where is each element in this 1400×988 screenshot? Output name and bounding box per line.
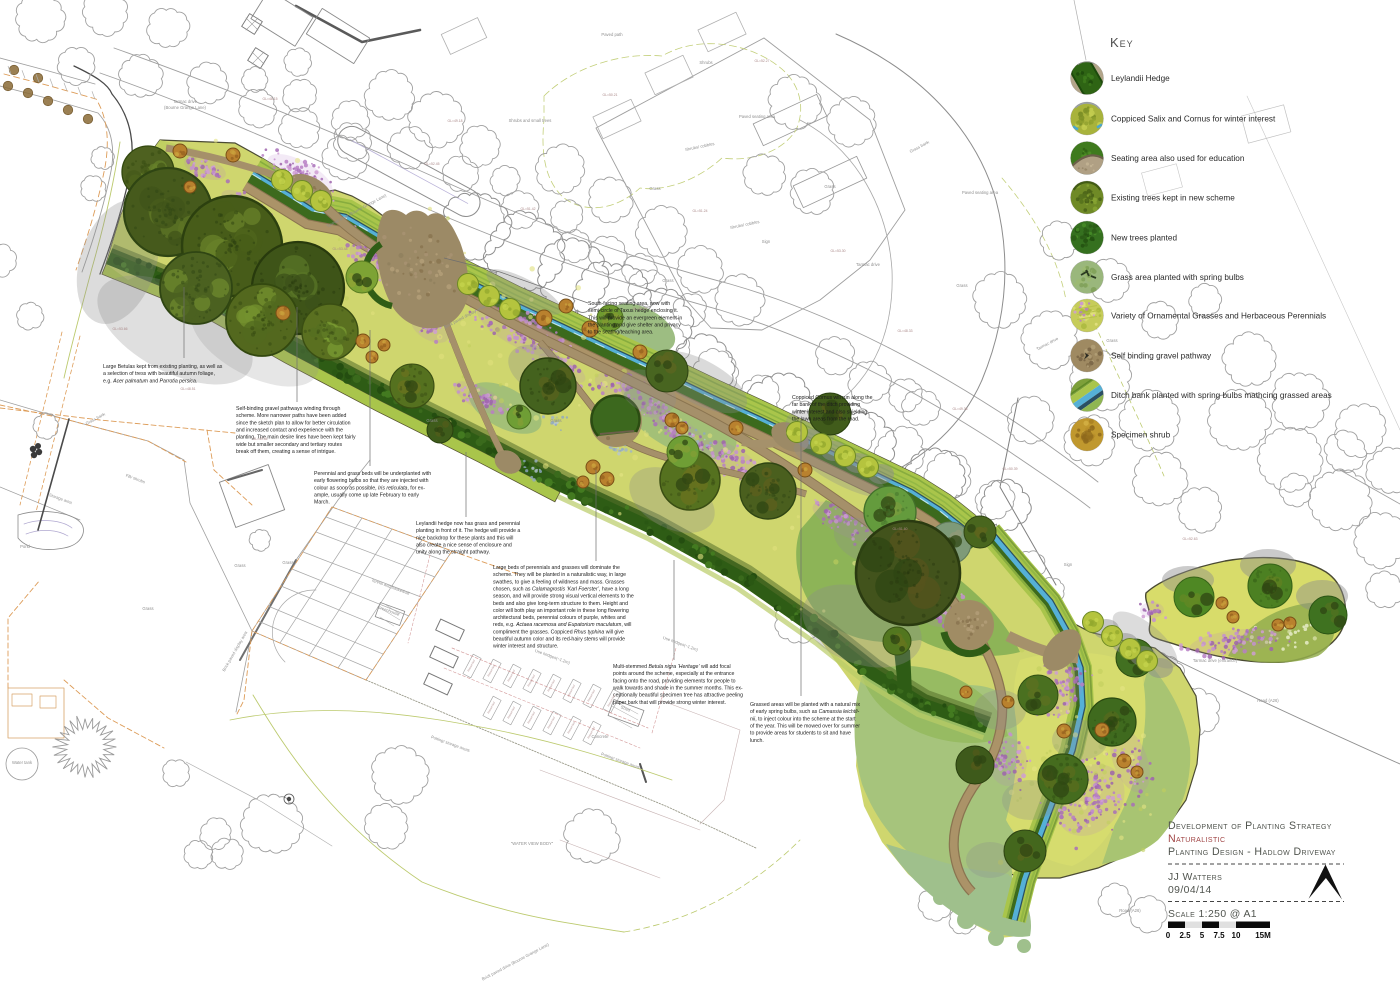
- svg-text:Paved seating area: Paved seating area: [962, 190, 999, 195]
- svg-text:Grass: Grass: [824, 184, 835, 189]
- svg-text:Leylandii Hedge: Leylandii Hedge: [1111, 74, 1170, 83]
- svg-text:GL=50.39: GL=50.39: [1003, 467, 1018, 471]
- svg-text:5: 5: [1200, 931, 1205, 940]
- svg-text:GL=51.60: GL=51.60: [893, 527, 908, 531]
- svg-text:Paved path: Paved path: [601, 32, 623, 37]
- svg-text:Specimen shrub: Specimen shrub: [1111, 431, 1171, 440]
- svg-text:0: 0: [1166, 931, 1171, 940]
- svg-text:10: 10: [1232, 931, 1241, 940]
- svg-text:GL=50.21: GL=50.21: [603, 93, 618, 97]
- svg-text:Tarmac drive: Tarmac drive: [173, 99, 198, 104]
- svg-text:GL=52.45: GL=52.45: [425, 162, 440, 166]
- svg-text:GL=53.66: GL=53.66: [113, 327, 128, 331]
- svg-text:Shrubs: Shrubs: [699, 60, 712, 65]
- svg-text:7.5: 7.5: [1213, 931, 1225, 940]
- svg-text:Multi-stemmed Betula nigra ‘He: Multi-stemmed Betula nigra ‘Heritage’ wi…: [613, 664, 743, 706]
- svg-text:Road (A26): Road (A26): [1119, 908, 1141, 913]
- svg-text:Sign: Sign: [1064, 562, 1073, 567]
- svg-text:GL=52.27: GL=52.27: [755, 59, 770, 63]
- svg-text:Shrubs and small trees: Shrubs and small trees: [509, 118, 552, 123]
- svg-text:Key: Key: [1110, 35, 1134, 50]
- svg-text:Naturalistic: Naturalistic: [1168, 833, 1225, 845]
- svg-text:(Bourne Grange Lane): (Bourne Grange Lane): [164, 105, 207, 110]
- svg-text:GL=51.42: GL=51.42: [521, 207, 536, 211]
- svg-text:Paved seating area: Paved seating area: [739, 114, 776, 119]
- svg-text:GL=49.36: GL=49.36: [953, 407, 968, 411]
- svg-text:Coppiced Salix and Cornus for: Coppiced Salix and Cornus for winter int…: [1111, 115, 1276, 124]
- svg-text:Grass: Grass: [662, 278, 673, 283]
- svg-text:Planting Design - Hadlow Drive: Planting Design - Hadlow Driveway: [1168, 846, 1336, 858]
- svg-text:Pond: Pond: [20, 544, 30, 549]
- svg-text:Variety of Ornamental Grasses: Variety of Ornamental Grasses and Herbac…: [1111, 312, 1326, 321]
- svg-text:GL=53.48: GL=53.48: [333, 247, 348, 251]
- svg-text:Grass: Grass: [282, 560, 293, 565]
- svg-text:Ditch bank planted with spring: Ditch bank planted with spring bulbs mat…: [1111, 391, 1332, 400]
- svg-text:GL=49.18: GL=49.18: [448, 119, 463, 123]
- svg-text:15M: 15M: [1255, 931, 1271, 940]
- svg-text:New trees planted: New trees planted: [1111, 234, 1177, 243]
- svg-text:Tarmac drive: Tarmac drive: [856, 262, 881, 267]
- svg-text:Grass: Grass: [550, 418, 561, 423]
- svg-text:Large beds of perennials and g: Large beds of perennials and grasses wil…: [493, 565, 634, 650]
- svg-text:Road (A26): Road (A26): [1257, 698, 1279, 703]
- svg-text:GL=50.57: GL=50.57: [633, 307, 648, 311]
- svg-text:Grass: Grass: [142, 606, 153, 611]
- svg-text:GL=53.30: GL=53.30: [831, 249, 846, 253]
- svg-text:GL=49.54: GL=49.54: [253, 437, 268, 441]
- svg-text:2.5: 2.5: [1179, 931, 1191, 940]
- svg-text:Development of Planting Strate: Development of Planting Strategy: [1168, 820, 1332, 832]
- svg-text:GL=52.63: GL=52.63: [1183, 537, 1198, 541]
- svg-text:“WATER VIEW BODY”: “WATER VIEW BODY”: [511, 841, 554, 846]
- svg-text:GL=51.24: GL=51.24: [693, 209, 708, 213]
- svg-text:Self-binding gravel pathways w: Self-binding gravel pathways winding thr…: [236, 406, 356, 455]
- svg-text:Sign: Sign: [762, 239, 771, 244]
- svg-text:Seating area also used for edu: Seating area also used for education: [1111, 154, 1245, 163]
- svg-text:Grass: Grass: [956, 283, 967, 288]
- svg-text:Grass: Grass: [426, 418, 437, 423]
- svg-text:Concrete: Concrete: [592, 734, 610, 739]
- svg-text:Grass area planted with spring: Grass area planted with spring bulbs: [1111, 273, 1244, 282]
- svg-text:09/04/14: 09/04/14: [1168, 885, 1212, 896]
- svg-text:GL=48.15: GL=48.15: [263, 97, 278, 101]
- svg-text:Self binding gravel pathway: Self binding gravel pathway: [1111, 352, 1212, 361]
- svg-text:Water tank: Water tank: [12, 760, 33, 765]
- svg-text:JJ Watters: JJ Watters: [1168, 872, 1222, 883]
- svg-text:Grass: Grass: [649, 186, 660, 191]
- svg-text:GL=48.33: GL=48.33: [898, 329, 913, 333]
- svg-text:Existing trees kept in new sch: Existing trees kept in new scheme: [1111, 194, 1235, 203]
- svg-text:GL=48.51: GL=48.51: [181, 387, 196, 391]
- svg-text:Grass: Grass: [1106, 338, 1117, 343]
- svg-text:Scale 1:250 @ A1: Scale 1:250 @ A1: [1168, 909, 1257, 920]
- svg-text:Grass: Grass: [234, 563, 245, 568]
- svg-text:Tarmac drive (entrance): Tarmac drive (entrance): [1193, 658, 1238, 663]
